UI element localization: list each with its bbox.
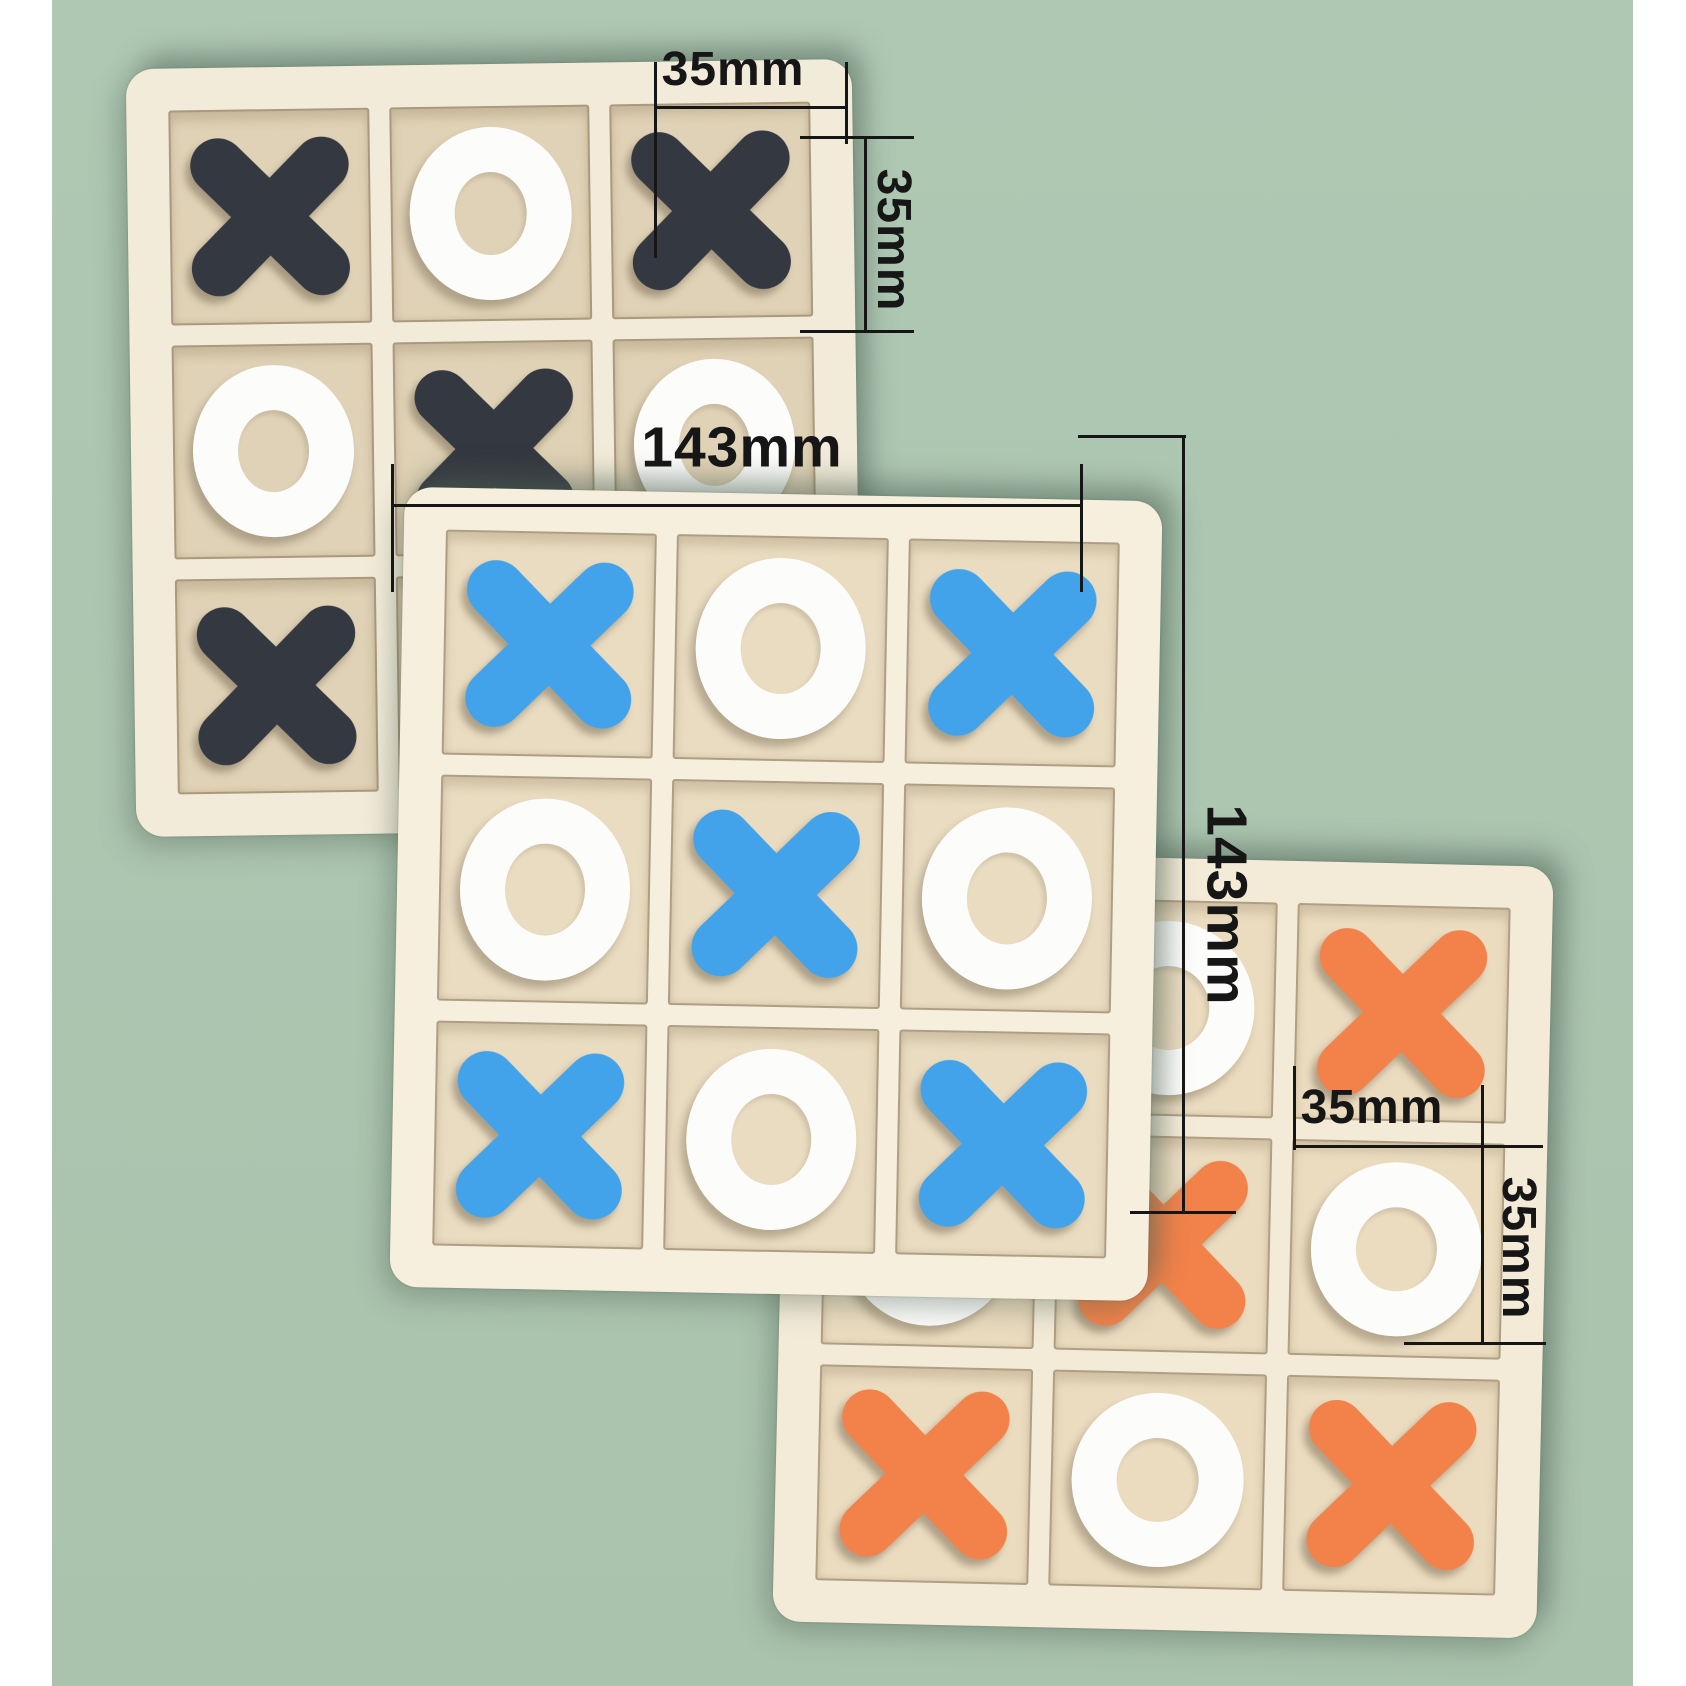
o-piece [694, 556, 867, 741]
o-piece [192, 364, 356, 539]
dimension-tick [845, 62, 848, 144]
dimension-line [1182, 435, 1185, 1213]
dimension-tick [1080, 464, 1083, 592]
dimension-line [1481, 1085, 1484, 1345]
board-cell [815, 1364, 1033, 1585]
dimension-label-board-width: 143mm [641, 420, 842, 477]
x-piece [906, 541, 1118, 766]
dimension-tick [391, 464, 394, 592]
dimension-label-bottom-cell-height: 35mm [1494, 1177, 1542, 1320]
x-piece [897, 1031, 1109, 1256]
dimension-label-top-cell-height: 35mm [869, 169, 917, 312]
x-piece [177, 579, 377, 792]
dimension-label-board-height: 143mm [1198, 804, 1255, 1005]
product-photo-scene: 35mm 35mm 143mm 143mm 35mm 35mm [0, 0, 1686, 1686]
dimension-tick [800, 136, 914, 139]
board-cell [673, 534, 889, 763]
board-cell [668, 779, 884, 1008]
board-cell [437, 775, 653, 1004]
board-cell [172, 342, 376, 559]
board-cell [442, 530, 658, 759]
left-white-strip [0, 0, 52, 1686]
board-cell [1282, 1375, 1500, 1596]
board-cell [175, 577, 379, 794]
board-cell [899, 784, 1115, 1013]
x-piece [612, 104, 812, 317]
right-white-strip [1633, 0, 1686, 1686]
board-cell [1049, 1370, 1267, 1591]
dimension-line [656, 106, 848, 109]
dimension-tick [654, 62, 657, 258]
dimension-line [393, 504, 1083, 507]
o-piece [458, 797, 631, 982]
board-grid [432, 530, 1120, 1259]
x-piece [444, 532, 656, 757]
board-cell [168, 108, 372, 325]
x-piece [1284, 1377, 1498, 1594]
board-cell [610, 102, 814, 319]
dimension-tick [1130, 1211, 1236, 1214]
board-cell [389, 105, 593, 322]
x-piece [670, 781, 882, 1006]
o-piece [1070, 1391, 1246, 1569]
x-piece [434, 1022, 646, 1247]
o-piece [1308, 1160, 1484, 1338]
x-piece [170, 110, 370, 323]
x-piece [817, 1366, 1031, 1583]
o-piece [685, 1047, 858, 1232]
board-cell [663, 1025, 879, 1254]
dimension-label-bottom-cell-width: 35mm [1301, 1084, 1444, 1132]
board-cell [1287, 1139, 1505, 1360]
dimension-tick [1404, 1342, 1546, 1345]
o-piece [409, 126, 573, 301]
board-cell [432, 1020, 648, 1249]
dimension-label-top-cell-width: 35mm [662, 46, 805, 94]
o-piece [921, 806, 1094, 991]
board-cell [904, 538, 1120, 767]
dimension-tick [1293, 1066, 1296, 1150]
board-cell [895, 1029, 1111, 1258]
dimension-tick [800, 330, 914, 333]
dimension-tick [1078, 435, 1186, 438]
tictactoe-board-blue [389, 487, 1162, 1301]
dimension-line [1295, 1145, 1543, 1148]
